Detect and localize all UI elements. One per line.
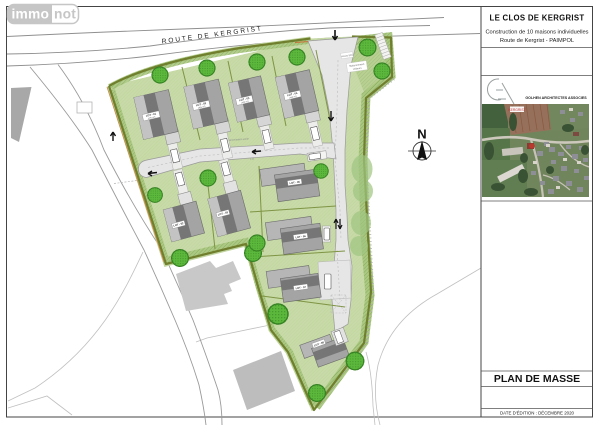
svg-text:Route de Kergrist - PAIMPOL: Route de Kergrist - PAIMPOL [500, 38, 574, 44]
svg-text:immo: immo [12, 7, 50, 22]
svg-text:LE CLOS DE KERGRIST: LE CLOS DE KERGRIST [490, 14, 585, 23]
svg-text:N: N [417, 127, 426, 142]
svg-text:KERGRIST: KERGRIST [508, 108, 525, 112]
svg-text:Construction de 10 maisons ind: Construction de 10 maisons individuelles [485, 30, 588, 36]
svg-text:DATE D'ÉDITION : DÉCEMBRE 2020: DATE D'ÉDITION : DÉCEMBRE 2020 [500, 411, 575, 416]
svg-text:PLAN DE MASSE: PLAN DE MASSE [494, 373, 580, 385]
svg-text:not: not [54, 7, 76, 22]
svg-text:GOLHEN ARCHITECTES ASSOCIES: GOLHEN ARCHITECTES ASSOCIES [525, 96, 587, 100]
